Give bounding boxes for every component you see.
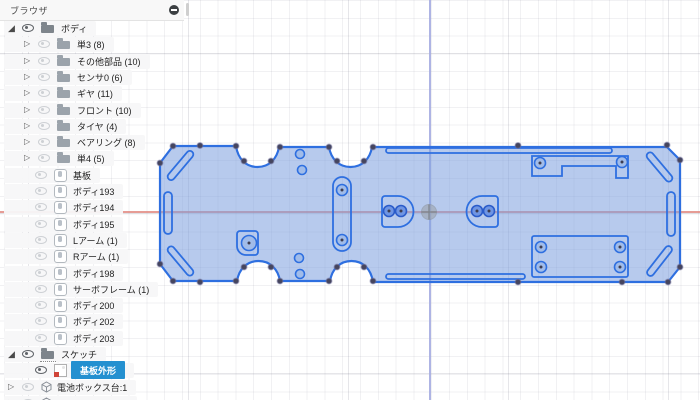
folder-icon	[57, 155, 70, 163]
item-label: スケッチ	[61, 348, 97, 361]
application-viewport: ブラウザ ◢ ボディ ▷単3 (8) ▷その他部品 (10) ▷センサ0 (6)…	[0, 0, 700, 400]
visibility-eye-icon[interactable]	[35, 236, 47, 244]
sketch-folder-icon	[41, 351, 54, 359]
visibility-eye-icon[interactable]	[35, 317, 47, 325]
body-icon	[54, 299, 67, 312]
body-icon	[54, 218, 67, 231]
body-icon	[54, 234, 67, 247]
expand-arrow-icon[interactable]: ▷	[24, 88, 36, 98]
browser-item-servo-frame[interactable]: ▷サーボフレーム (1)	[4, 281, 158, 297]
visibility-eye-icon[interactable]	[38, 73, 50, 81]
item-label: Rアーム (1)	[73, 250, 119, 263]
browser-item-body198[interactable]: ▷ボディ198	[4, 265, 123, 281]
body-icon	[54, 185, 67, 198]
expand-arrow-icon[interactable]: ◢	[8, 349, 20, 359]
visibility-eye-icon[interactable]	[38, 106, 50, 114]
browser-item-battery-box[interactable]: ▷ 電池ボックス台:1	[4, 379, 136, 395]
folder-icon	[57, 107, 70, 115]
panel-title: ブラウザ	[10, 4, 48, 17]
body-icon	[54, 201, 67, 214]
item-label: ボディ193	[73, 185, 114, 198]
item-label: ボディ195	[73, 218, 114, 231]
browser-item-sketches-folder[interactable]: ◢ スケッチ	[4, 346, 106, 362]
body-icon	[54, 267, 67, 280]
item-label: ボディ	[61, 22, 87, 35]
component-cube-icon	[41, 381, 52, 393]
item-label: Lアーム (1)	[73, 234, 118, 247]
item-label: センサ0 (6)	[77, 71, 123, 84]
expand-arrow-icon[interactable]: ▷	[24, 72, 36, 82]
folder-icon	[41, 25, 54, 33]
browser-item-tan4[interactable]: ▷単4 (5)	[4, 150, 114, 166]
body-icon	[54, 169, 67, 182]
visibility-eye-icon[interactable]	[35, 171, 47, 179]
item-label: 基板	[73, 169, 91, 182]
item-label: ボディ194	[73, 201, 114, 214]
item-label: ボディ200	[73, 299, 114, 312]
browser-item-body202[interactable]: ▷ボディ202	[4, 313, 123, 329]
item-label: ボディ202	[73, 315, 114, 328]
visibility-eye-icon[interactable]	[35, 269, 47, 277]
browser-item-body193[interactable]: ▷ボディ193	[4, 183, 123, 199]
visibility-eye-icon[interactable]	[35, 366, 47, 374]
body-icon	[54, 332, 67, 345]
browser-item-tire[interactable]: ▷タイヤ (4)	[4, 118, 126, 134]
visibility-eye-icon[interactable]	[22, 383, 34, 391]
visibility-eye-icon[interactable]	[22, 350, 34, 358]
body-icon	[54, 283, 67, 296]
visibility-eye-icon[interactable]	[35, 203, 47, 211]
browser-item-l-arm[interactable]: ▷Lアーム (1)	[4, 232, 127, 248]
folder-icon	[57, 139, 70, 147]
folder-icon	[57, 90, 70, 98]
body-icon	[54, 250, 67, 263]
browser-item-r-arm[interactable]: ▷Rアーム (1)	[4, 248, 128, 264]
body-icon	[54, 315, 67, 328]
expand-arrow-icon[interactable]: ▷	[24, 39, 36, 49]
browser-item-tan3[interactable]: ▷単3 (8)	[4, 36, 114, 52]
panel-resize-handle[interactable]	[186, 3, 189, 16]
browser-item-body194[interactable]: ▷ボディ194	[4, 199, 123, 215]
expand-arrow-icon[interactable]: ▷	[24, 121, 36, 131]
visibility-eye-icon[interactable]	[38, 154, 50, 162]
item-label: タイヤ (4)	[77, 120, 117, 133]
browser-item-bodies-folder[interactable]: ◢ ボディ	[4, 20, 96, 36]
item-label: ボディ198	[73, 267, 114, 280]
item-label: ギヤ (11)	[77, 87, 113, 100]
browser-panel-header: ブラウザ	[0, 0, 184, 21]
visibility-eye-icon[interactable]	[35, 220, 47, 228]
visibility-eye-icon[interactable]	[35, 301, 47, 309]
panel-collapse-icon[interactable]	[169, 5, 179, 15]
browser-item-body203[interactable]: ▷ボディ203	[4, 330, 123, 346]
expand-arrow-icon[interactable]: ◢	[8, 23, 20, 33]
visibility-eye-icon[interactable]	[38, 89, 50, 97]
expand-arrow-icon[interactable]: ▷	[24, 137, 36, 147]
expand-arrow-icon[interactable]: ▷	[24, 153, 36, 163]
browser-item-bearing[interactable]: ▷ベアリング (8)	[4, 134, 145, 150]
item-label: フロント (10)	[77, 104, 132, 117]
browser-item-other-parts[interactable]: ▷その他部品 (10)	[4, 53, 150, 69]
item-label: その他部品 (10)	[77, 55, 141, 68]
origin-marker[interactable]	[422, 205, 437, 220]
browser-item-gear[interactable]: ▷ギヤ (11)	[4, 85, 122, 101]
visibility-eye-icon[interactable]	[35, 334, 47, 342]
folder-icon	[57, 58, 70, 66]
browser-item-body200[interactable]: ▷ボディ200	[4, 297, 123, 313]
visibility-eye-icon[interactable]	[35, 187, 47, 195]
item-label: 電池ボックス台:1	[57, 381, 127, 394]
browser-item-front[interactable]: ▷フロント (10)	[4, 102, 141, 118]
browser-item-body195[interactable]: ▷ボディ195	[4, 216, 123, 232]
visibility-eye-icon[interactable]	[22, 24, 34, 32]
selected-item-label: 基板外形	[71, 361, 125, 379]
expand-arrow-icon[interactable]: ▷	[8, 382, 20, 392]
browser-item-kiban[interactable]: ▷基板	[4, 167, 100, 183]
item-label: ベアリング (8)	[77, 136, 136, 149]
item-label: ボディ203	[73, 332, 114, 345]
folder-icon	[57, 41, 70, 49]
folder-icon	[57, 123, 70, 131]
visibility-eye-icon[interactable]	[38, 57, 50, 65]
visibility-eye-icon[interactable]	[35, 252, 47, 260]
folder-icon	[57, 74, 70, 82]
browser-item-kiban-gaikei[interactable]: ▷ 基板外形	[4, 362, 134, 378]
visibility-eye-icon[interactable]	[38, 122, 50, 130]
item-label: 単4 (5)	[77, 152, 105, 165]
browser-item-clipped[interactable]: ▷	[4, 395, 137, 400]
item-label: サーボフレーム (1)	[73, 283, 149, 296]
browser-item-sensor0[interactable]: ▷センサ0 (6)	[4, 69, 132, 85]
visibility-eye-icon[interactable]	[38, 40, 50, 48]
expand-arrow-icon[interactable]: ▷	[24, 56, 36, 66]
visibility-eye-icon[interactable]	[38, 138, 50, 146]
item-label: 単3 (8)	[77, 38, 105, 51]
expand-arrow-icon[interactable]: ▷	[24, 105, 36, 115]
sketch-icon	[54, 364, 67, 377]
visibility-eye-icon[interactable]	[35, 285, 47, 293]
